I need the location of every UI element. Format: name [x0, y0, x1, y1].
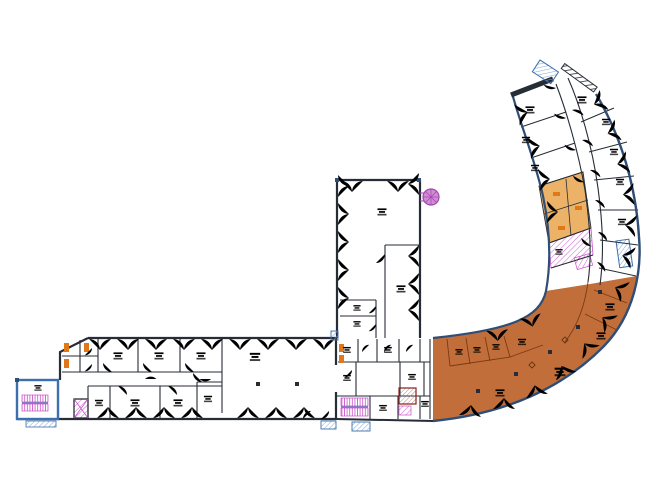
junction-staircase [341, 398, 368, 416]
column [256, 382, 260, 386]
bottom-wing-doors [103, 363, 211, 395]
elevator-west [74, 399, 88, 418]
entry-steps-south-2 [352, 422, 370, 431]
west-stair-block [15, 378, 58, 427]
vertical-wing-windows [338, 173, 419, 321]
floor-plan-drawing [0, 0, 660, 500]
vertical-wing-walls [337, 180, 420, 338]
vertical-wing [331, 173, 439, 340]
bottom-wing-windows [89, 339, 335, 418]
vertical-wing-partitions [340, 245, 420, 338]
south-entrance-doors [303, 411, 329, 419]
service-room-magenta [399, 406, 411, 415]
vertical-wing-room-labels [353, 208, 405, 326]
vertical-wing-small-room-doors [369, 306, 376, 331]
spiral-stair [420, 189, 439, 205]
curved-wing [433, 60, 640, 421]
junction-core [303, 339, 433, 431]
entry-steps-south-1 [321, 421, 336, 429]
vertical-wing-doors [376, 254, 385, 263]
west-entry-steps [26, 421, 56, 427]
junction-wc-doors [345, 345, 413, 377]
highlighted-orange-zone [433, 276, 637, 421]
service-room-red [399, 388, 416, 404]
bottom-wing [17, 338, 336, 419]
wing-side-door [331, 331, 338, 340]
column [295, 382, 299, 386]
west-staircase [22, 395, 48, 411]
bottom-wing-room-labels [95, 352, 260, 406]
floor-plan-canvas [0, 0, 660, 500]
